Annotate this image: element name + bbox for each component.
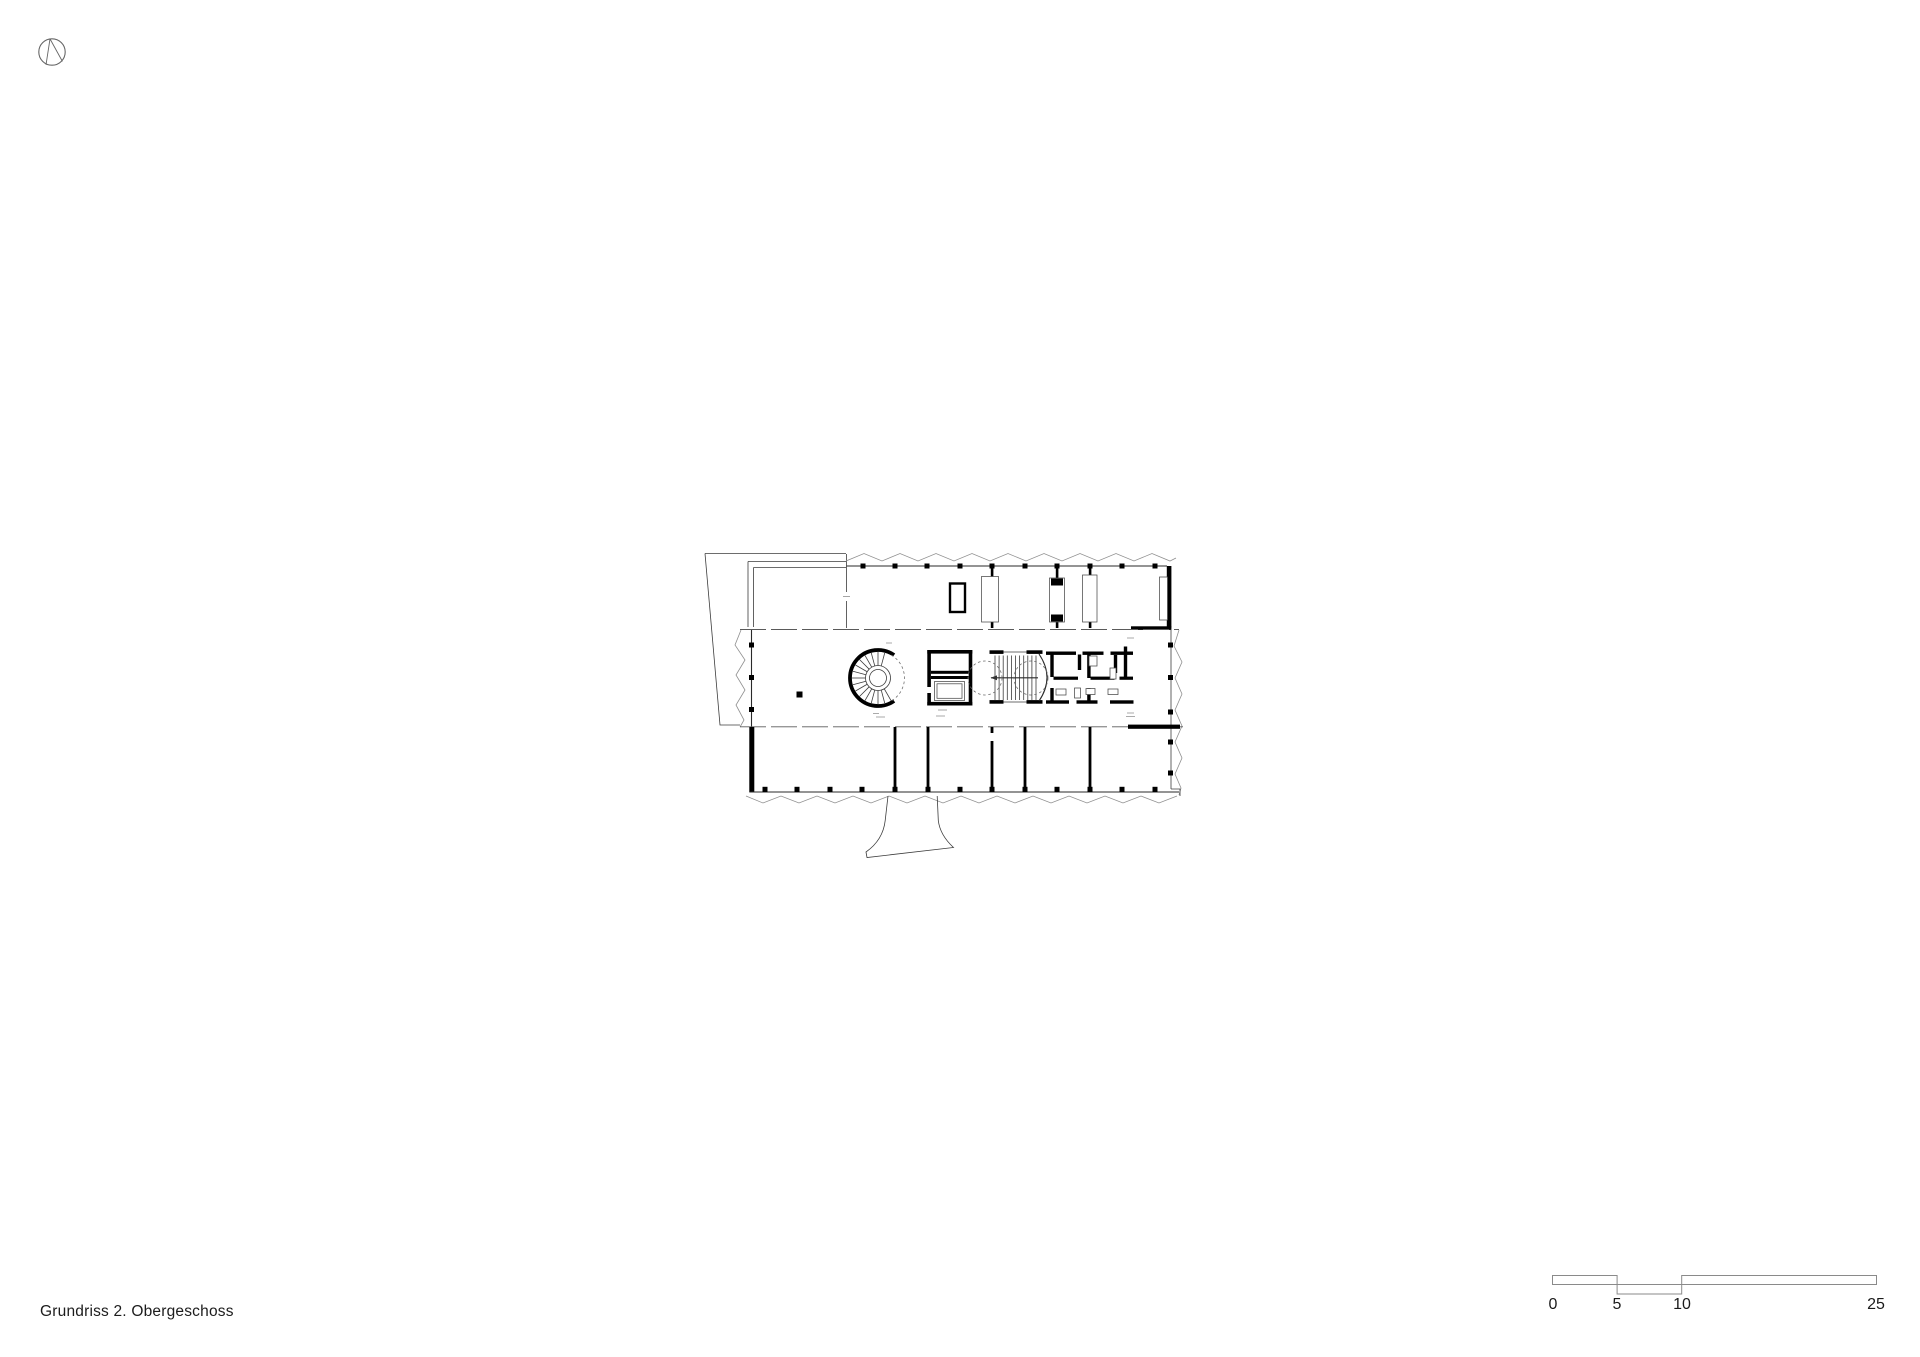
scale-label-10: 10 bbox=[1673, 1296, 1691, 1314]
exterior-canopy bbox=[866, 796, 954, 858]
drawing-caption: Grundriss 2. Obergeschoss bbox=[40, 1302, 234, 1322]
scale-label-0: 0 bbox=[1549, 1296, 1558, 1314]
lower-band bbox=[746, 725, 1180, 803]
corridor-line bbox=[740, 716, 1183, 727]
shaft-box bbox=[950, 584, 965, 613]
floor-plan-drawing bbox=[698, 540, 1198, 870]
drawing-sheet: Grundriss 2. Obergeschoss 0 5 10 25 bbox=[0, 0, 1920, 1357]
terrace-outline bbox=[705, 554, 850, 726]
scale-label-5: 5 bbox=[1613, 1296, 1622, 1314]
scale-bar: 0 5 10 25 bbox=[1552, 1274, 1892, 1319]
scale-label-25: 25 bbox=[1867, 1296, 1885, 1314]
elevator-shaft bbox=[927, 650, 972, 710]
spiral-stair bbox=[850, 643, 904, 714]
north-arrow-icon bbox=[36, 36, 68, 68]
scale-bar-graphic bbox=[1552, 1274, 1882, 1296]
upper-wing bbox=[740, 554, 1179, 630]
straight-stair bbox=[968, 650, 1048, 703]
wc-rooms bbox=[1046, 647, 1134, 704]
